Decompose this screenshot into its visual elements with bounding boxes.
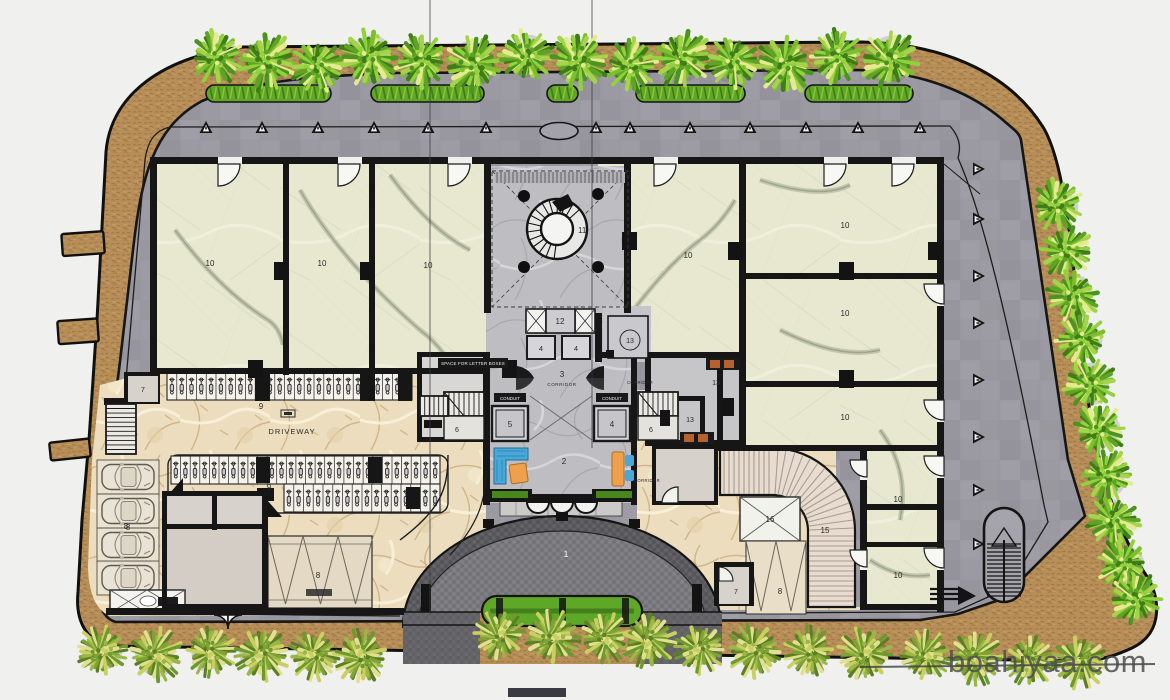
svg-text:CORRIDOR: CORRIDOR	[627, 380, 653, 385]
svg-text:12: 12	[556, 317, 565, 326]
svg-text:10: 10	[841, 309, 850, 318]
svg-text:SPACE FOR LETTER BOXES: SPACE FOR LETTER BOXES	[441, 361, 505, 366]
svg-text:13: 13	[626, 338, 634, 345]
svg-text:CORRIDOR: CORRIDOR	[634, 478, 660, 483]
svg-text:15: 15	[821, 526, 830, 535]
svg-text:7: 7	[141, 387, 145, 394]
svg-text:13: 13	[686, 417, 694, 424]
svg-text:11: 11	[578, 226, 587, 235]
svg-text:10: 10	[894, 571, 903, 580]
svg-text:8: 8	[124, 522, 129, 531]
svg-text:10: 10	[841, 221, 850, 230]
svg-text:9: 9	[267, 483, 272, 492]
svg-text:boahiyaa.com: boahiyaa.com	[948, 644, 1147, 679]
svg-text:3: 3	[560, 370, 565, 379]
svg-text:7: 7	[734, 589, 738, 596]
svg-text:2: 2	[562, 457, 567, 466]
svg-text:4: 4	[539, 344, 543, 353]
svg-text:16: 16	[766, 515, 775, 524]
svg-text:10: 10	[841, 413, 850, 422]
svg-text:8: 8	[316, 571, 321, 580]
svg-text:5: 5	[508, 420, 513, 429]
svg-text:10: 10	[206, 259, 215, 268]
svg-text:4: 4	[610, 420, 615, 429]
svg-text:6: 6	[455, 427, 459, 434]
svg-text:4: 4	[574, 344, 578, 353]
svg-text:CORRIDOR: CORRIDOR	[547, 382, 576, 387]
svg-text:10: 10	[894, 495, 903, 504]
svg-text:9: 9	[259, 402, 264, 411]
svg-text:6: 6	[649, 427, 653, 434]
svg-text:13: 13	[712, 380, 720, 387]
svg-text:10: 10	[684, 251, 693, 260]
svg-text:8: 8	[778, 587, 783, 596]
svg-text:1: 1	[563, 549, 568, 559]
svg-text:DRIVEWAY: DRIVEWAY	[268, 427, 315, 436]
svg-text:CONDUIT: CONDUIT	[500, 396, 520, 401]
svg-text:10: 10	[318, 259, 327, 268]
svg-text:10: 10	[424, 261, 433, 270]
svg-text:CONDUIT: CONDUIT	[602, 396, 622, 401]
